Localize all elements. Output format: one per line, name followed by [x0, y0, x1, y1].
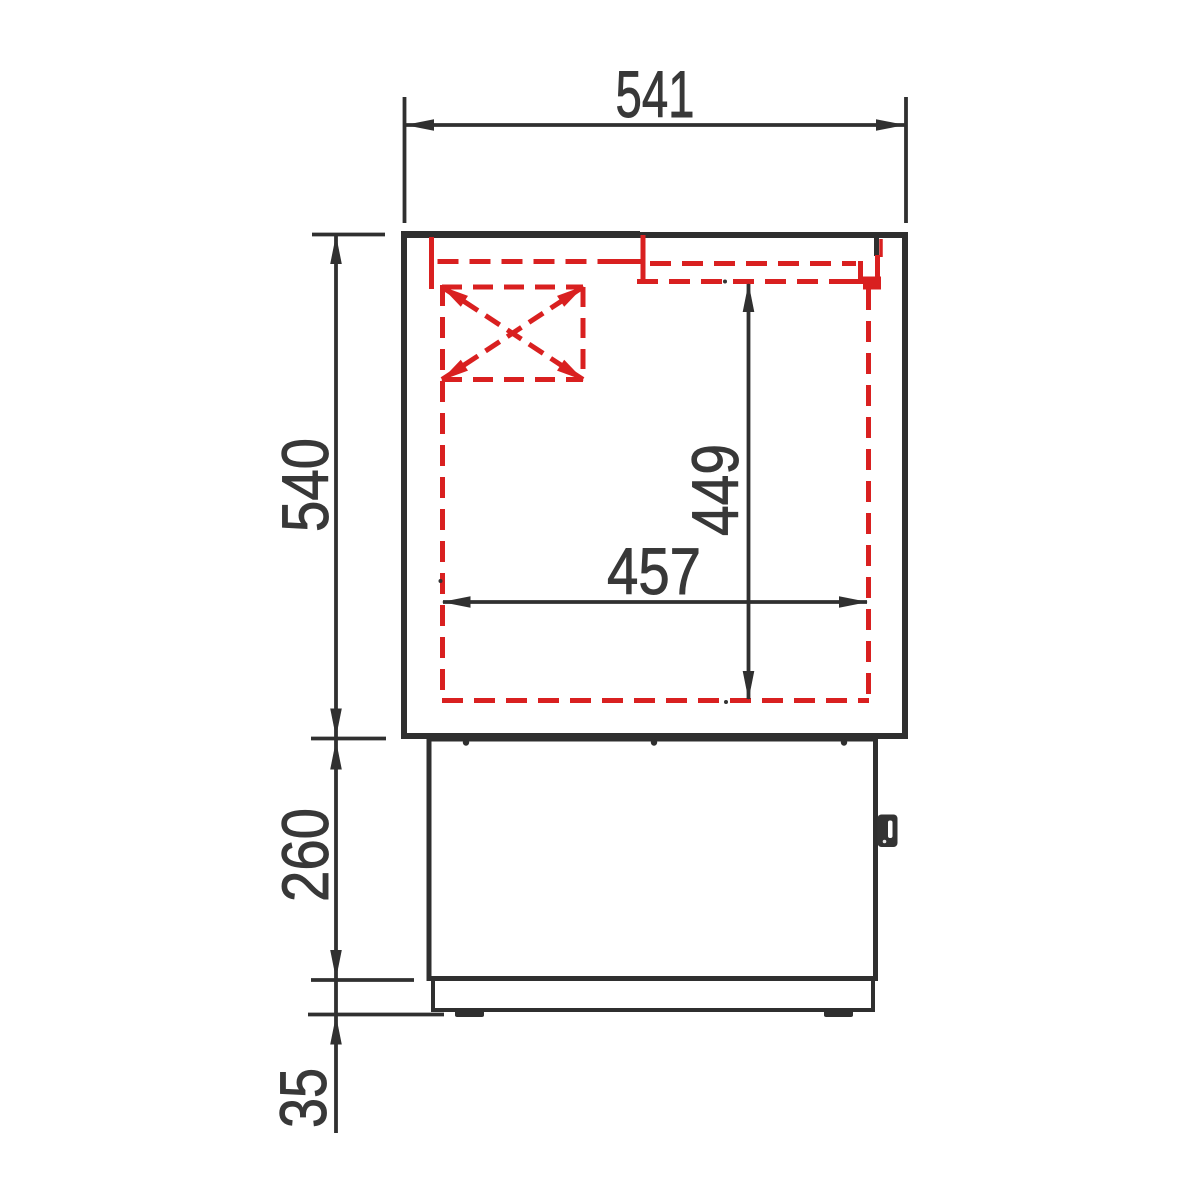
- svg-text:541: 541: [616, 57, 695, 131]
- svg-text:260: 260: [268, 808, 342, 902]
- svg-text:457: 457: [607, 534, 701, 608]
- svg-text:540: 540: [268, 438, 342, 532]
- svg-text:35: 35: [266, 1068, 340, 1128]
- svg-text:449: 449: [678, 444, 752, 536]
